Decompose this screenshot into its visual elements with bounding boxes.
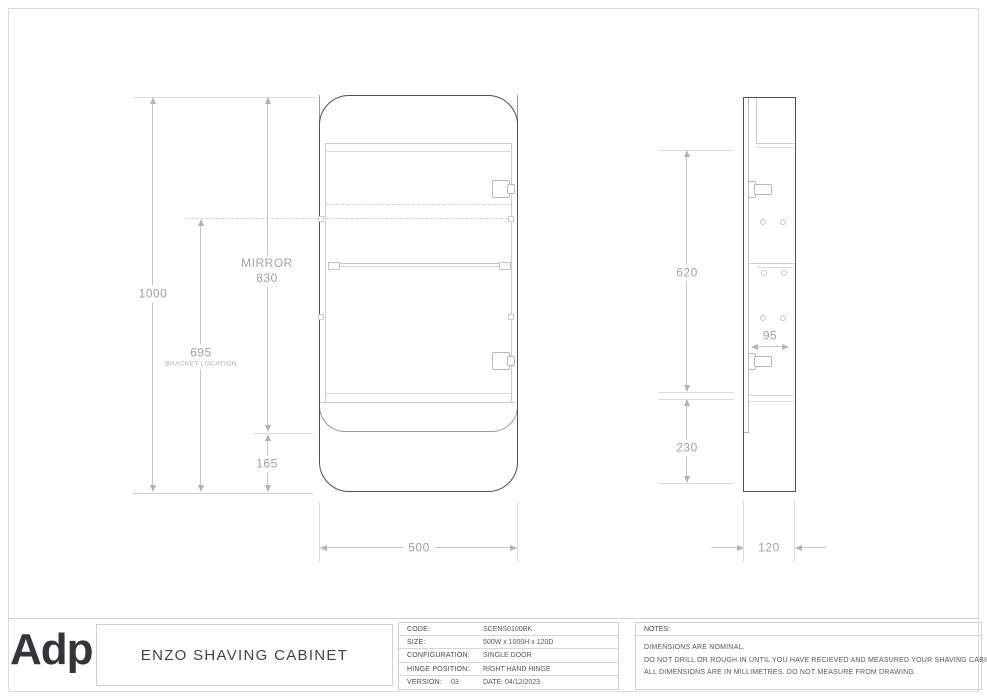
note-line-3: ALL DIMENSIONS ARE IN MILLIMETRES. DO NO… [644,669,916,676]
spec-row-size: SIZE: 500W x 1000H x 120D [399,636,618,649]
spec-value: SINGLE DOOR [483,652,532,659]
spec-label: VERSION: [407,679,442,686]
spec-value: RIGHT HAND HINGE [483,666,551,673]
spec-label: CONFIGURATION: [407,652,470,659]
spec-value: 500W x 1000H x 120D [483,639,553,646]
spec-label: SIZE: [407,639,426,646]
adp-logo: Adp [10,628,93,672]
notes-header-label: NOTES: [644,626,670,633]
spec-value: SCENS0100BK [483,626,532,633]
spec-table: CODE: SCENS0100BK SIZE: 500W x 1000H x 1… [398,622,619,690]
spec-label: HINGE POSITION: [407,666,470,673]
footer-separator-line [8,618,979,619]
drawing-sheet: 1000 695 BRACKET LOCATION MIRROR 830 165… [0,0,987,700]
spec-row-hinge: HINGE POSITION: RIGHT HAND HINGE [399,663,618,676]
notes-header-row: NOTES: [636,623,981,636]
note-line-2: DO NOT DRILL OR ROUGH IN UNTIL YOU HAVE … [644,657,987,664]
spec-label: CODE: [407,626,430,633]
spec-date-value: DATE: 04/12/2023 [483,679,540,686]
sheet-border [8,8,979,692]
drawing-title-box: ENZO SHAVING CABINET [96,624,393,686]
spec-row-code: CODE: SCENS0100BK [399,623,618,636]
spec-row-configuration: CONFIGURATION: SINGLE DOOR [399,649,618,662]
spec-row-version: VERSION: 03 DATE: 04/12/2023 [399,676,618,688]
drawing-title: ENZO SHAVING CABINET [141,647,348,664]
note-line-1: DIMENSIONS ARE NOMINAL. [644,644,745,651]
spec-version-value: 03 [451,679,459,686]
notes-box: NOTES: DIMENSIONS ARE NOMINAL. DO NOT DR… [635,622,982,690]
